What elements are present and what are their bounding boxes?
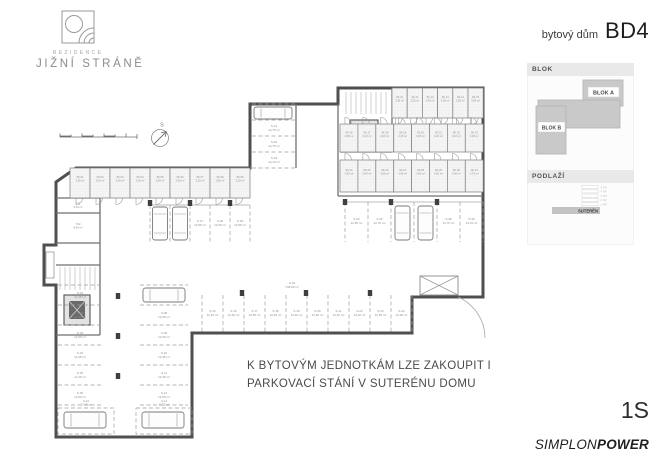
floor-row[interactable] [582, 186, 598, 189]
parked-car [142, 412, 184, 428]
storage-cell-label: SK.103,30 m² [395, 95, 404, 103]
storage-cell-label: SK.093,20 m² [236, 175, 245, 183]
storage-cell-label: SK.293,60 m² [434, 168, 443, 176]
block-a-label[interactable]: BLOK A [593, 90, 614, 96]
storage-cell-label: SK.052,90 m² [156, 175, 165, 183]
logo-brand-small: REZIDENCE [36, 50, 120, 56]
blok-panel-body: BLOK A BLOK B [527, 76, 634, 174]
storage-cell-label: SK.153,60 m² [471, 95, 480, 103]
plan-sheet-page: REZIDENCE JIŽNÍ STRÁNĚ bytový dům BD4 BL… [0, 0, 662, 468]
storage-cell-label: SK.163,05 m² [345, 131, 354, 139]
structural-column [435, 199, 439, 205]
floor-row[interactable] [582, 198, 598, 201]
brand-bold: POWER [597, 437, 649, 452]
blok-panel: BLOK BLOK A BLOK B [527, 63, 634, 174]
parked-car [173, 207, 188, 240]
storage-cell-label: SK.243,50 m² [345, 168, 354, 176]
storage-cell-label: SK.143,35 m² [456, 95, 465, 103]
parked-car [153, 207, 168, 240]
scale-bar [60, 134, 137, 140]
sheet-title: bytový dům BD4 [542, 18, 649, 44]
storage-cell-label: SK.173,10 m² [362, 131, 371, 139]
floor-plan-drawing: SK.012,95 m²SK.023,05 m²SK.033,05 m²SK.0… [40, 80, 515, 450]
structural-column [148, 200, 152, 206]
residence-logo-icon [61, 10, 95, 44]
logo-brand-large: JIŽNÍ STRÁNĚ [36, 58, 120, 70]
parking-note-line1: K BYTOVÝM JEDNOTKÁM LZE ZAKOUPIT I [247, 358, 491, 376]
structural-column [116, 333, 120, 339]
podlazi-panel: PODLAŽÍ 5.NP4.NP3.NP2.NP1.NP SUTERÉN [527, 170, 634, 245]
sheet-title-prefix: bytový dům [542, 29, 598, 41]
storage-cell-label: SK.033,05 m² [116, 175, 125, 183]
block-b-label[interactable]: BLOK B [542, 125, 562, 131]
storage-cell-label: SK.073,15 m² [196, 175, 205, 183]
structural-column [240, 290, 244, 296]
structural-column [304, 290, 308, 296]
structural-column [368, 290, 372, 296]
floor-plan-area: SK.012,95 m²SK.023,05 m²SK.033,05 m²SK.0… [40, 80, 515, 450]
storage-cell-label: SK.193,15 m² [398, 131, 407, 139]
simplonpower-logo: SIMPLONPOWER [535, 437, 649, 452]
storage-cell-label: SK.303,40 m² [452, 168, 461, 176]
floor-stack: 5.NP4.NP3.NP2.NP1.NP SUTERÉN [528, 183, 633, 239]
blok-panel-header: BLOK [527, 63, 634, 76]
floor-row[interactable] [582, 203, 598, 206]
storage-cell-label: SK.133,30 m² [441, 95, 450, 103]
storage-cell-label: SK.123,40 m² [426, 95, 435, 103]
parked-car [64, 412, 106, 428]
storage-cell-label: SK.283,50 m² [416, 168, 425, 176]
podlazi-panel-body: 5.NP4.NP3.NP2.NP1.NP SUTERÉN [527, 183, 634, 245]
structural-column [343, 199, 347, 205]
north-arrow-icon: S [152, 123, 169, 147]
storage-cell-label: SK.253,40 m² [362, 168, 371, 176]
storage-cell-label: SK.233,45 m² [470, 131, 479, 139]
structural-column [389, 199, 393, 205]
brand-regular: SIMPLON [535, 437, 597, 452]
structural-column [228, 200, 232, 206]
storage-cell-label: SK.023,05 m² [96, 175, 105, 183]
blok-keyplan: BLOK A BLOK B [528, 76, 633, 168]
storage-cell-label: SK.273,45 m² [398, 168, 407, 176]
podlazi-panel-header: PODLAŽÍ [527, 170, 634, 183]
storage-cell-label: SK.263,55 m² [380, 168, 389, 176]
parked-car [254, 107, 292, 119]
parked-car [143, 288, 185, 302]
parking-note-line2: PARKOVACÍ STÁNÍ V SUTERÉNU DOMU [247, 376, 491, 394]
storage-cell-label: SK.063,05 m² [176, 175, 185, 183]
sheet-title-code: BD4 [605, 18, 649, 44]
storage-cell-label: SK.213,20 m² [434, 131, 443, 139]
storage-cell-label: SK.313,75 m² [470, 168, 479, 176]
storage-cell-label: SK.043,10 m² [136, 175, 145, 183]
storage-cell-label: SK.082,95 m² [216, 175, 225, 183]
storage-cell-label: SK.223,10 m² [452, 131, 461, 139]
selected-floor-label[interactable]: SUTERÉN [578, 209, 598, 214]
storage-cell-label: SK.183,00 m² [380, 131, 389, 139]
structural-column [116, 373, 120, 379]
left-elevator-shaft [64, 295, 90, 325]
storage-cell-label: SK.203,05 m² [416, 131, 425, 139]
parked-car [418, 206, 433, 240]
floor-row[interactable] [582, 190, 598, 193]
structural-column [188, 200, 192, 206]
floor-code: 1S [621, 397, 649, 424]
structural-column [116, 293, 120, 299]
residence-logo: REZIDENCE JIŽNÍ STRÁNĚ [36, 10, 120, 70]
parking-note: K BYTOVÝM JEDNOTKÁM LZE ZAKOUPIT I PARKO… [247, 358, 491, 393]
north-label: S [160, 123, 164, 129]
storage-cell-label: SK.113,25 m² [410, 95, 419, 103]
floor-row-label[interactable]: 1.NP [601, 203, 607, 207]
floor-row[interactable] [582, 194, 598, 197]
parked-car [395, 206, 410, 240]
storage-cell-label: SK.012,95 m² [76, 175, 85, 183]
